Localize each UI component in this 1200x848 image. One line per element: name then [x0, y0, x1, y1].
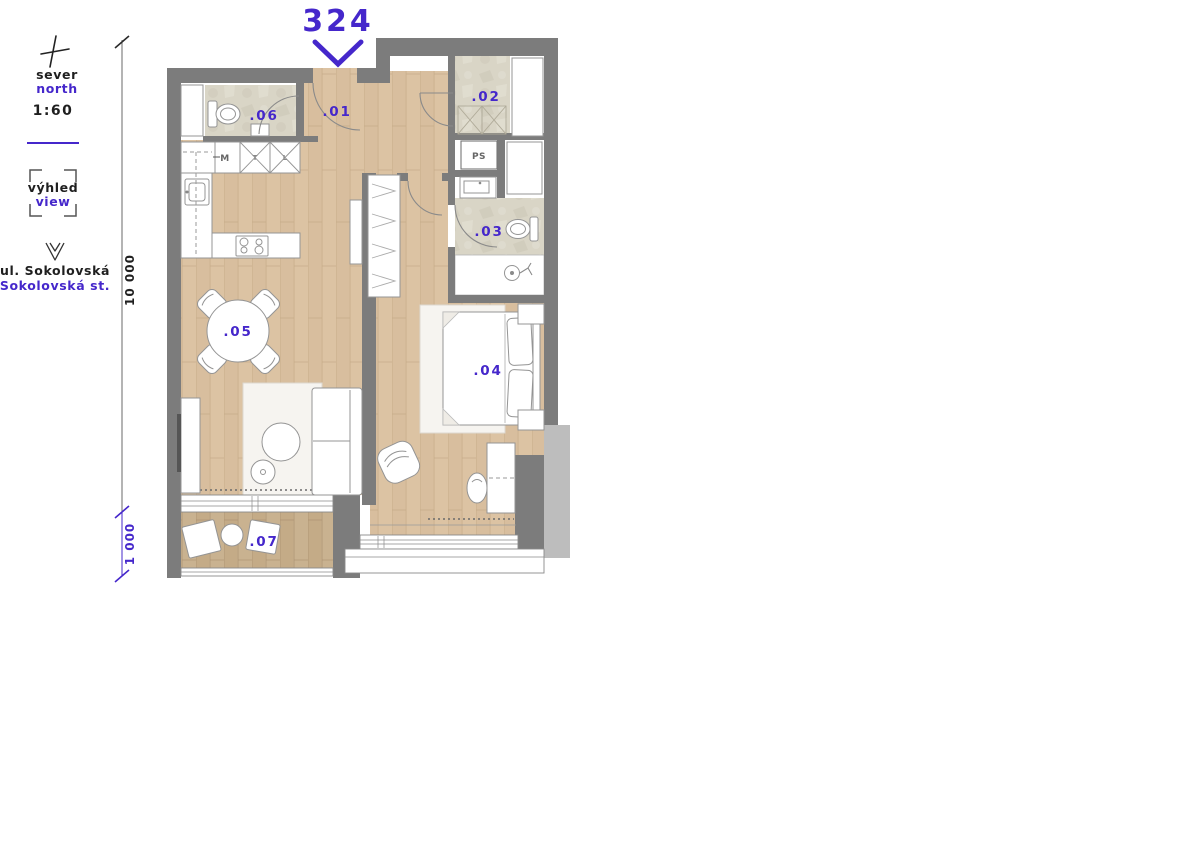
- appliance-label-l: L: [283, 154, 288, 162]
- wc-niche: [181, 85, 203, 136]
- exterior-shadow: [544, 425, 570, 558]
- north-icon: [41, 36, 69, 67]
- nightstand-top: [518, 304, 544, 324]
- floor-plan-drawing: sever north 1:60 výhled view ul. Sokolov…: [0, 0, 1200, 848]
- wardrobe: [368, 175, 400, 297]
- desk: [487, 443, 515, 513]
- desk-chair: [467, 473, 487, 503]
- nightstand-bottom: [518, 410, 544, 430]
- north-label-cs: sever: [36, 67, 78, 82]
- living-shelf: [350, 200, 362, 264]
- legend: sever north 1:60 výhled view ul. Sokolov…: [0, 36, 110, 293]
- room-label-living-room: .05: [223, 324, 252, 340]
- bathroom-vanity: [460, 177, 496, 198]
- dimension-total: 10 000: [123, 254, 137, 306]
- entrance-chevron-icon: [315, 42, 361, 64]
- street-label-en: Sokolovská st.: [0, 278, 110, 293]
- floor-shower-tray: [455, 255, 544, 295]
- side-table: [251, 460, 275, 484]
- apartment-number: 324: [302, 4, 374, 39]
- scale-label: 1:60: [33, 103, 74, 119]
- dimension-line: 10 000 1 000: [115, 36, 137, 582]
- coffee-table: [262, 423, 300, 461]
- niche-right: [507, 142, 542, 194]
- floor-plan-page: sever north 1:60 výhled view ul. Sokolov…: [0, 0, 1200, 848]
- balcony-table: [221, 524, 243, 546]
- appliance-label-m: M: [220, 154, 229, 164]
- floor-entry-threshold: [313, 68, 360, 84]
- view-label-en: view: [36, 194, 71, 209]
- apartment-title: 324: [302, 4, 374, 64]
- room-label-balcony: .07: [249, 534, 278, 550]
- room-label-wc: .06: [249, 108, 278, 124]
- room-label-hall: .01: [322, 104, 351, 120]
- room-label-shower-room: .02: [471, 89, 500, 105]
- dimension-balcony: 1 000: [123, 523, 137, 566]
- street-label-cs: ul. Sokolovská: [0, 263, 110, 278]
- cabinet-row: M T L: [181, 142, 300, 173]
- balcony-sliding-door: [181, 495, 333, 512]
- view-label-cs: výhled: [28, 180, 79, 195]
- bedroom-window-sill: [345, 549, 544, 573]
- shaft-label: PS: [472, 152, 486, 162]
- headboard: [533, 316, 540, 421]
- room-label-bedroom: .04: [473, 363, 502, 379]
- appliance-label-t: T: [253, 154, 258, 162]
- shower-room-closet: [512, 58, 543, 136]
- kitchen-counter-bottom: [212, 233, 300, 258]
- street-arrow-icon: [46, 243, 64, 260]
- north-label-en: north: [36, 81, 78, 96]
- sofa: [312, 388, 362, 495]
- room-label-bathroom: .03: [474, 224, 503, 240]
